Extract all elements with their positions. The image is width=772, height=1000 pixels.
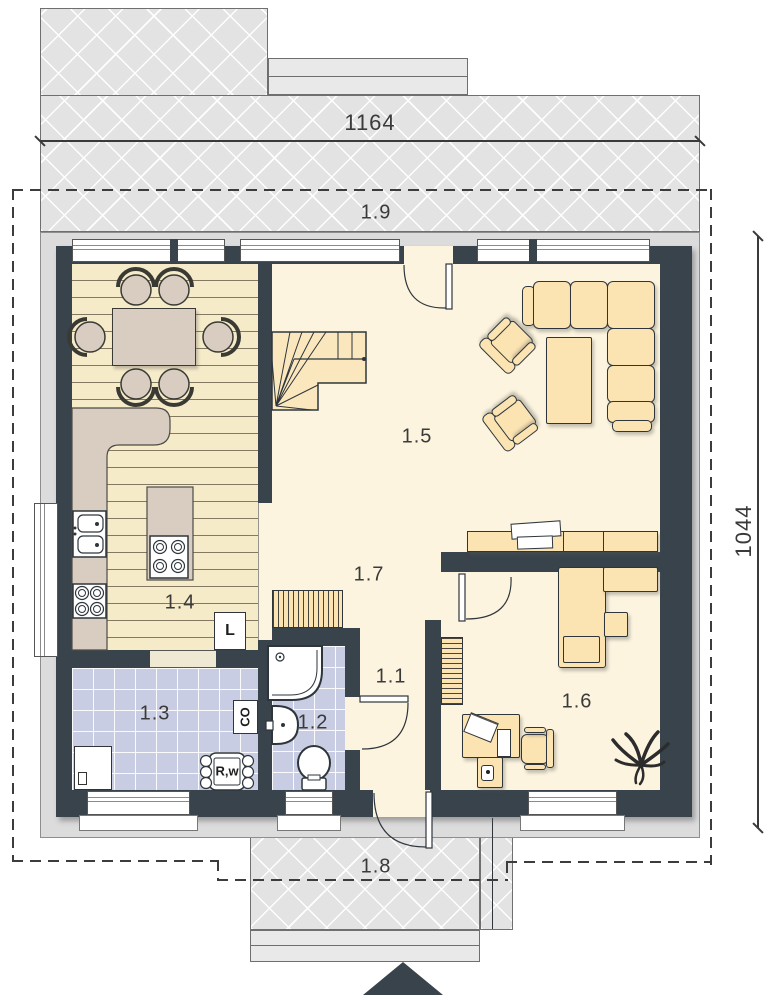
shower-icon (268, 646, 322, 700)
dimension-line-width (40, 140, 700, 142)
plant-icon (613, 732, 668, 784)
roof-outline-bottom-mid (217, 879, 508, 881)
room-label-1-6: 1.6 (562, 691, 593, 714)
heater-label: R,w (215, 764, 238, 779)
entry-door (374, 792, 432, 848)
fridge-label: L (225, 622, 235, 640)
floor-plan: 1164 1044 (0, 0, 772, 1000)
room-label-1-7: 1.7 (354, 564, 385, 587)
stairs-icon (272, 332, 366, 410)
roof-outline-step-left (217, 860, 219, 881)
roof-outline-right (710, 189, 712, 865)
stove-icon (73, 584, 106, 618)
room-label-1-9: 1.9 (361, 202, 392, 225)
room-label-1-4: 1.4 (165, 592, 196, 615)
dimension-height-label: 1044 (731, 505, 757, 558)
room-label-1-5: 1.5 (402, 426, 433, 449)
dimension-width-label: 1164 (344, 110, 395, 136)
room-label-1-1: 1.1 (376, 666, 407, 689)
room-label-1-8: 1.8 (361, 856, 392, 879)
terrace-door (404, 264, 452, 309)
boiler-label: CO (238, 707, 253, 727)
cooktop-icon (150, 536, 188, 578)
room-label-1-2: 1.2 (298, 712, 329, 735)
roof-outline-bottom-right (506, 861, 712, 863)
roof-outline-left (12, 189, 14, 862)
roof-outline-bottom-left (12, 860, 219, 862)
bathroom-door (360, 696, 408, 749)
roof-outline-top (12, 189, 712, 191)
room16-door (459, 574, 511, 621)
roof-outline-step-right (506, 862, 508, 881)
dining-chairs (69, 269, 239, 405)
room-label-1-3: 1.3 (140, 703, 171, 726)
kitchen-sink-icon (73, 511, 106, 557)
dimension-line-height (757, 236, 759, 828)
washbasin-icon (266, 706, 298, 744)
toilet-icon (298, 746, 330, 790)
plan-overlay (0, 0, 772, 1000)
